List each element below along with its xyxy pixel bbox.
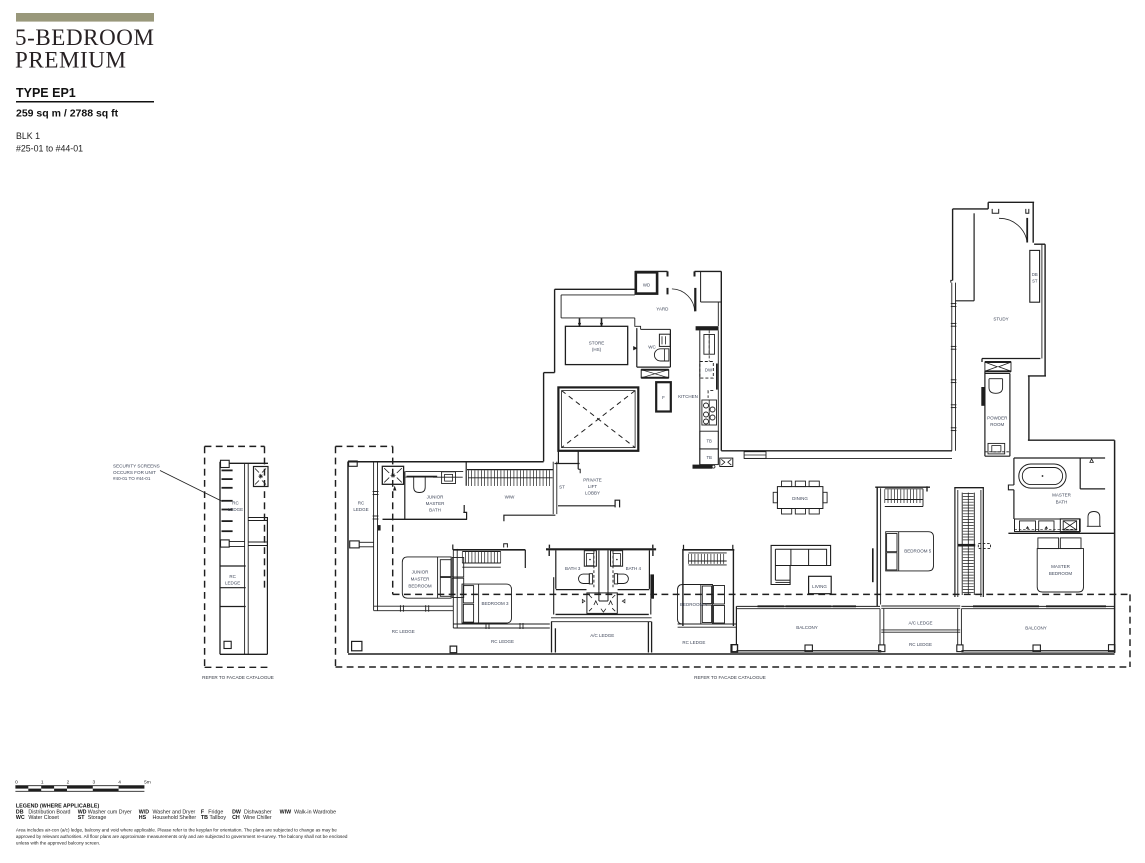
svg-text:REFER TO FACADE CATALOGUE: REFER TO FACADE CATALOGUE bbox=[202, 675, 274, 680]
svg-text:Water Closet: Water Closet bbox=[28, 815, 59, 821]
svg-text:0: 0 bbox=[15, 780, 18, 786]
svg-text:PREMIUM: PREMIUM bbox=[15, 48, 127, 73]
svg-text:BATH: BATH bbox=[1056, 500, 1068, 505]
svg-text:POWDER: POWDER bbox=[987, 416, 1008, 421]
svg-text:ST: ST bbox=[78, 815, 86, 821]
svg-text:TYPE EP1: TYPE EP1 bbox=[16, 86, 76, 100]
svg-text:RC LEDGE: RC LEDGE bbox=[909, 642, 932, 647]
svg-text:MASTER: MASTER bbox=[1052, 493, 1072, 498]
svg-text:REFER TO FACADE CATALOGUE: REFER TO FACADE CATALOGUE bbox=[694, 675, 766, 680]
svg-text:ST: ST bbox=[559, 485, 565, 490]
svg-text:BALCONY: BALCONY bbox=[796, 625, 818, 630]
svg-text:SECURITY SCREENS: SECURITY SCREENS bbox=[113, 464, 160, 469]
svg-text:BALCONY: BALCONY bbox=[1025, 626, 1047, 631]
svg-text:LIVING: LIVING bbox=[812, 584, 827, 589]
svg-text:BEDROOM 4: BEDROOM 4 bbox=[680, 602, 708, 607]
svg-text:OCCURS FOR UNIT: OCCURS FOR UNIT bbox=[113, 470, 156, 475]
svg-text:BATH 4: BATH 4 bbox=[626, 566, 642, 571]
svg-text:Storage: Storage bbox=[88, 815, 107, 821]
svg-text:F: F bbox=[662, 395, 665, 400]
svg-text:STUDY: STUDY bbox=[993, 317, 1008, 322]
svg-text:CH: CH bbox=[232, 815, 240, 821]
svg-text:ST: ST bbox=[1032, 278, 1038, 283]
svg-text:HS: HS bbox=[139, 815, 147, 821]
svg-text:WIW: WIW bbox=[280, 810, 291, 816]
svg-text:approved by relevant authoriti: approved by relevant authorities. All fl… bbox=[16, 834, 348, 839]
svg-text:A/C LEDGE: A/C LEDGE bbox=[590, 633, 614, 638]
svg-text:#25-01 to #44-01: #25-01 to #44-01 bbox=[16, 144, 83, 154]
svg-text:Tallboy: Tallboy bbox=[210, 815, 227, 821]
svg-text:LEDGE: LEDGE bbox=[353, 507, 368, 512]
svg-text:RC LEDGE: RC LEDGE bbox=[682, 640, 705, 645]
svg-text:5-BEDROOM: 5-BEDROOM bbox=[15, 25, 155, 50]
svg-text:JUNIOR: JUNIOR bbox=[427, 495, 445, 500]
svg-text:JUNIOR: JUNIOR bbox=[412, 570, 430, 575]
svg-text:WD: WD bbox=[643, 282, 650, 287]
svg-text:WIW: WIW bbox=[505, 495, 515, 500]
svg-text:LEDGE: LEDGE bbox=[228, 507, 243, 512]
svg-text:LOBBY: LOBBY bbox=[585, 491, 600, 496]
svg-text:5m: 5m bbox=[144, 780, 151, 786]
svg-text:RC: RC bbox=[358, 501, 365, 506]
svg-text:WC: WC bbox=[648, 345, 656, 350]
svg-text:BEDROOM: BEDROOM bbox=[408, 584, 432, 589]
svg-text:BEDROOM: BEDROOM bbox=[1049, 571, 1073, 576]
svg-text:KITCHEN: KITCHEN bbox=[678, 394, 698, 399]
svg-text:A/C LEDGE: A/C LEDGE bbox=[908, 621, 932, 626]
svg-text:1: 1 bbox=[41, 780, 44, 786]
svg-text:MASTER: MASTER bbox=[426, 501, 446, 506]
svg-text:2: 2 bbox=[67, 780, 70, 786]
svg-text:TB: TB bbox=[201, 815, 208, 821]
svg-text:4: 4 bbox=[118, 780, 121, 786]
svg-text:RC: RC bbox=[229, 574, 236, 579]
svg-text:LEDGE: LEDGE bbox=[225, 581, 240, 586]
svg-text:MASTER: MASTER bbox=[411, 577, 431, 582]
svg-text:DINING: DINING bbox=[792, 496, 808, 501]
svg-text:(HS): (HS) bbox=[592, 347, 602, 352]
svg-text:Area includes air-con (a/c) le: Area includes air-con (a/c) ledge, balco… bbox=[16, 828, 337, 833]
svg-text:RC LEDGE: RC LEDGE bbox=[491, 639, 514, 644]
svg-text:Household Shelter: Household Shelter bbox=[153, 815, 197, 821]
svg-text:unless with the approved balco: unless with the approved balcony screen. bbox=[16, 840, 100, 845]
svg-text:PRIVATE: PRIVATE bbox=[583, 478, 602, 483]
svg-text:ROOM: ROOM bbox=[990, 422, 1004, 427]
svg-text:STORE: STORE bbox=[589, 341, 604, 346]
svg-text:#40-01 TO #44-01: #40-01 TO #44-01 bbox=[113, 476, 151, 481]
svg-text:Walk-in Wardrobe: Walk-in Wardrobe bbox=[294, 810, 336, 816]
svg-text:BEDROOM 3: BEDROOM 3 bbox=[481, 601, 509, 606]
svg-text:DB: DB bbox=[1032, 272, 1038, 277]
svg-text:259 sq m / 2788 sq ft: 259 sq m / 2788 sq ft bbox=[16, 108, 119, 120]
svg-text:TB: TB bbox=[706, 439, 712, 444]
svg-text:LIFT: LIFT bbox=[588, 484, 598, 489]
svg-text:YARD: YARD bbox=[656, 307, 669, 312]
svg-text:WC: WC bbox=[16, 815, 25, 821]
svg-text:TB: TB bbox=[706, 455, 712, 460]
svg-text:DW: DW bbox=[705, 368, 713, 373]
svg-text:MASTER: MASTER bbox=[1051, 564, 1071, 569]
svg-text:BATH 3: BATH 3 bbox=[565, 566, 581, 571]
svg-text:3: 3 bbox=[92, 780, 95, 786]
svg-text:BLK 1: BLK 1 bbox=[16, 131, 40, 141]
svg-text:RC LEDGE: RC LEDGE bbox=[392, 629, 415, 634]
svg-text:Wine Chiller: Wine Chiller bbox=[243, 815, 272, 821]
svg-text:BEDROOM 5: BEDROOM 5 bbox=[904, 549, 932, 554]
svg-text:RC: RC bbox=[232, 501, 239, 506]
svg-text:BATH: BATH bbox=[429, 508, 441, 513]
